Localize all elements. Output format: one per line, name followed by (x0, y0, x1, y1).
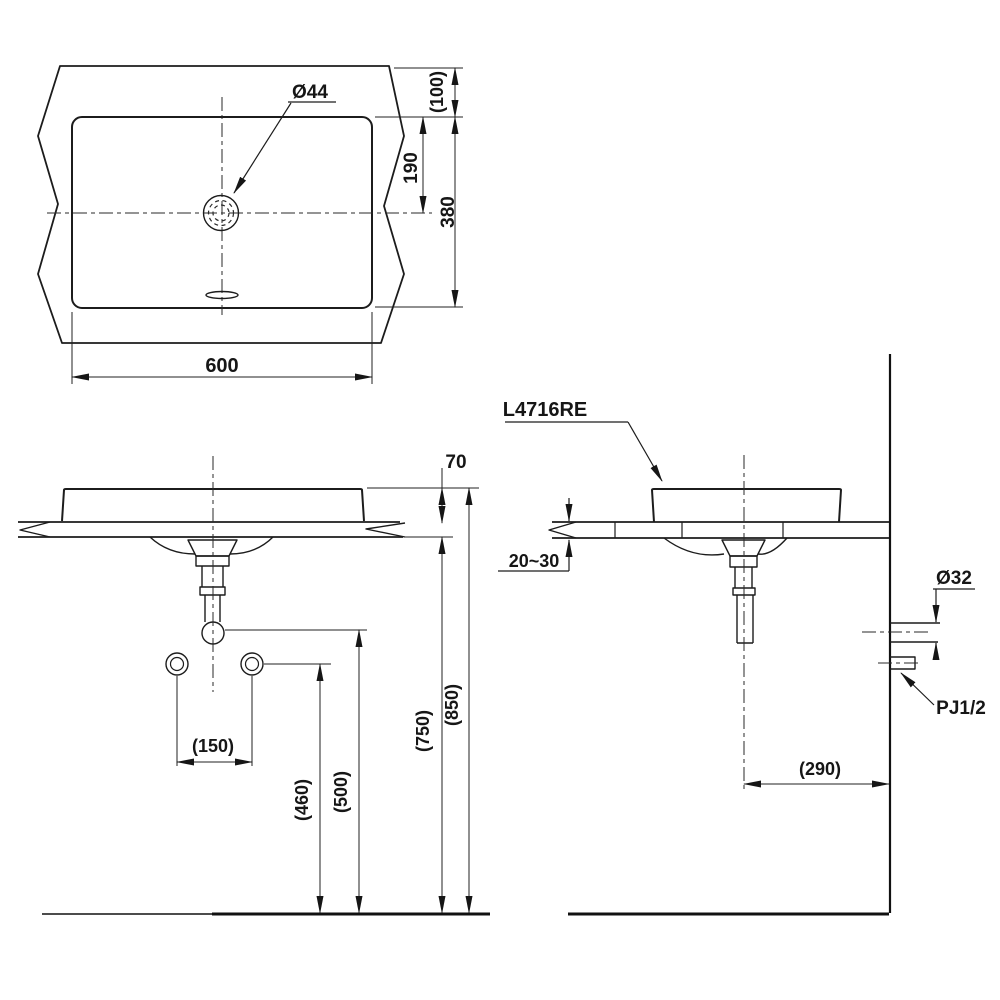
hole-diameter-label: Ø44 (292, 82, 328, 103)
supply-right-outer (241, 653, 263, 675)
bowl-underside-side-left (664, 538, 724, 555)
model-code-label: L4716RE (503, 399, 588, 421)
dim-850-label: (850) (442, 684, 462, 726)
plan-view: Ø44 (100) 190 380 600 (38, 66, 463, 384)
front-view: 70 (150) (460) (500) (750) (850) (18, 452, 490, 914)
counter-break-left (20, 522, 50, 537)
model-leader-arrow (628, 422, 662, 481)
technical-drawing-sheet: Ø44 (100) 190 380 600 (0, 0, 1000, 1000)
dim-500-label: (500) (331, 771, 351, 813)
dim-100-label: (100) (427, 71, 447, 113)
dim-460-label: (460) (292, 779, 312, 821)
supply-left-outer (166, 653, 188, 675)
drain-pipe-lower-side (737, 595, 753, 643)
dim-70-label: 70 (445, 452, 466, 473)
counter-break-right (366, 523, 405, 537)
supply-right-inner (246, 658, 259, 671)
basin-side (652, 489, 841, 522)
dim-290-label: (290) (799, 759, 841, 779)
dim-600-label: 600 (205, 355, 238, 377)
side-view: L4716RE 20~30 Ø32 PJ1/2 (290) (498, 354, 986, 914)
dim-750-label: (750) (413, 710, 433, 752)
supply-thread-leader (901, 673, 934, 705)
supply-thread-label: PJ1/2 (936, 698, 986, 719)
wall-drain-diameter-label: Ø32 (936, 568, 972, 589)
counter-thickness-label: 20~30 (509, 551, 560, 571)
counter-break-side (549, 522, 576, 538)
counter-outline (38, 66, 404, 343)
supply-left-inner (171, 658, 184, 671)
dim-150-label: (150) (192, 736, 234, 756)
counter-joint-ticks (615, 522, 783, 538)
washbasin-installation-drawing: Ø44 (100) 190 380 600 (0, 0, 1000, 1000)
dim-190-label: 190 (401, 152, 422, 184)
dim-380-label: 380 (438, 196, 459, 228)
